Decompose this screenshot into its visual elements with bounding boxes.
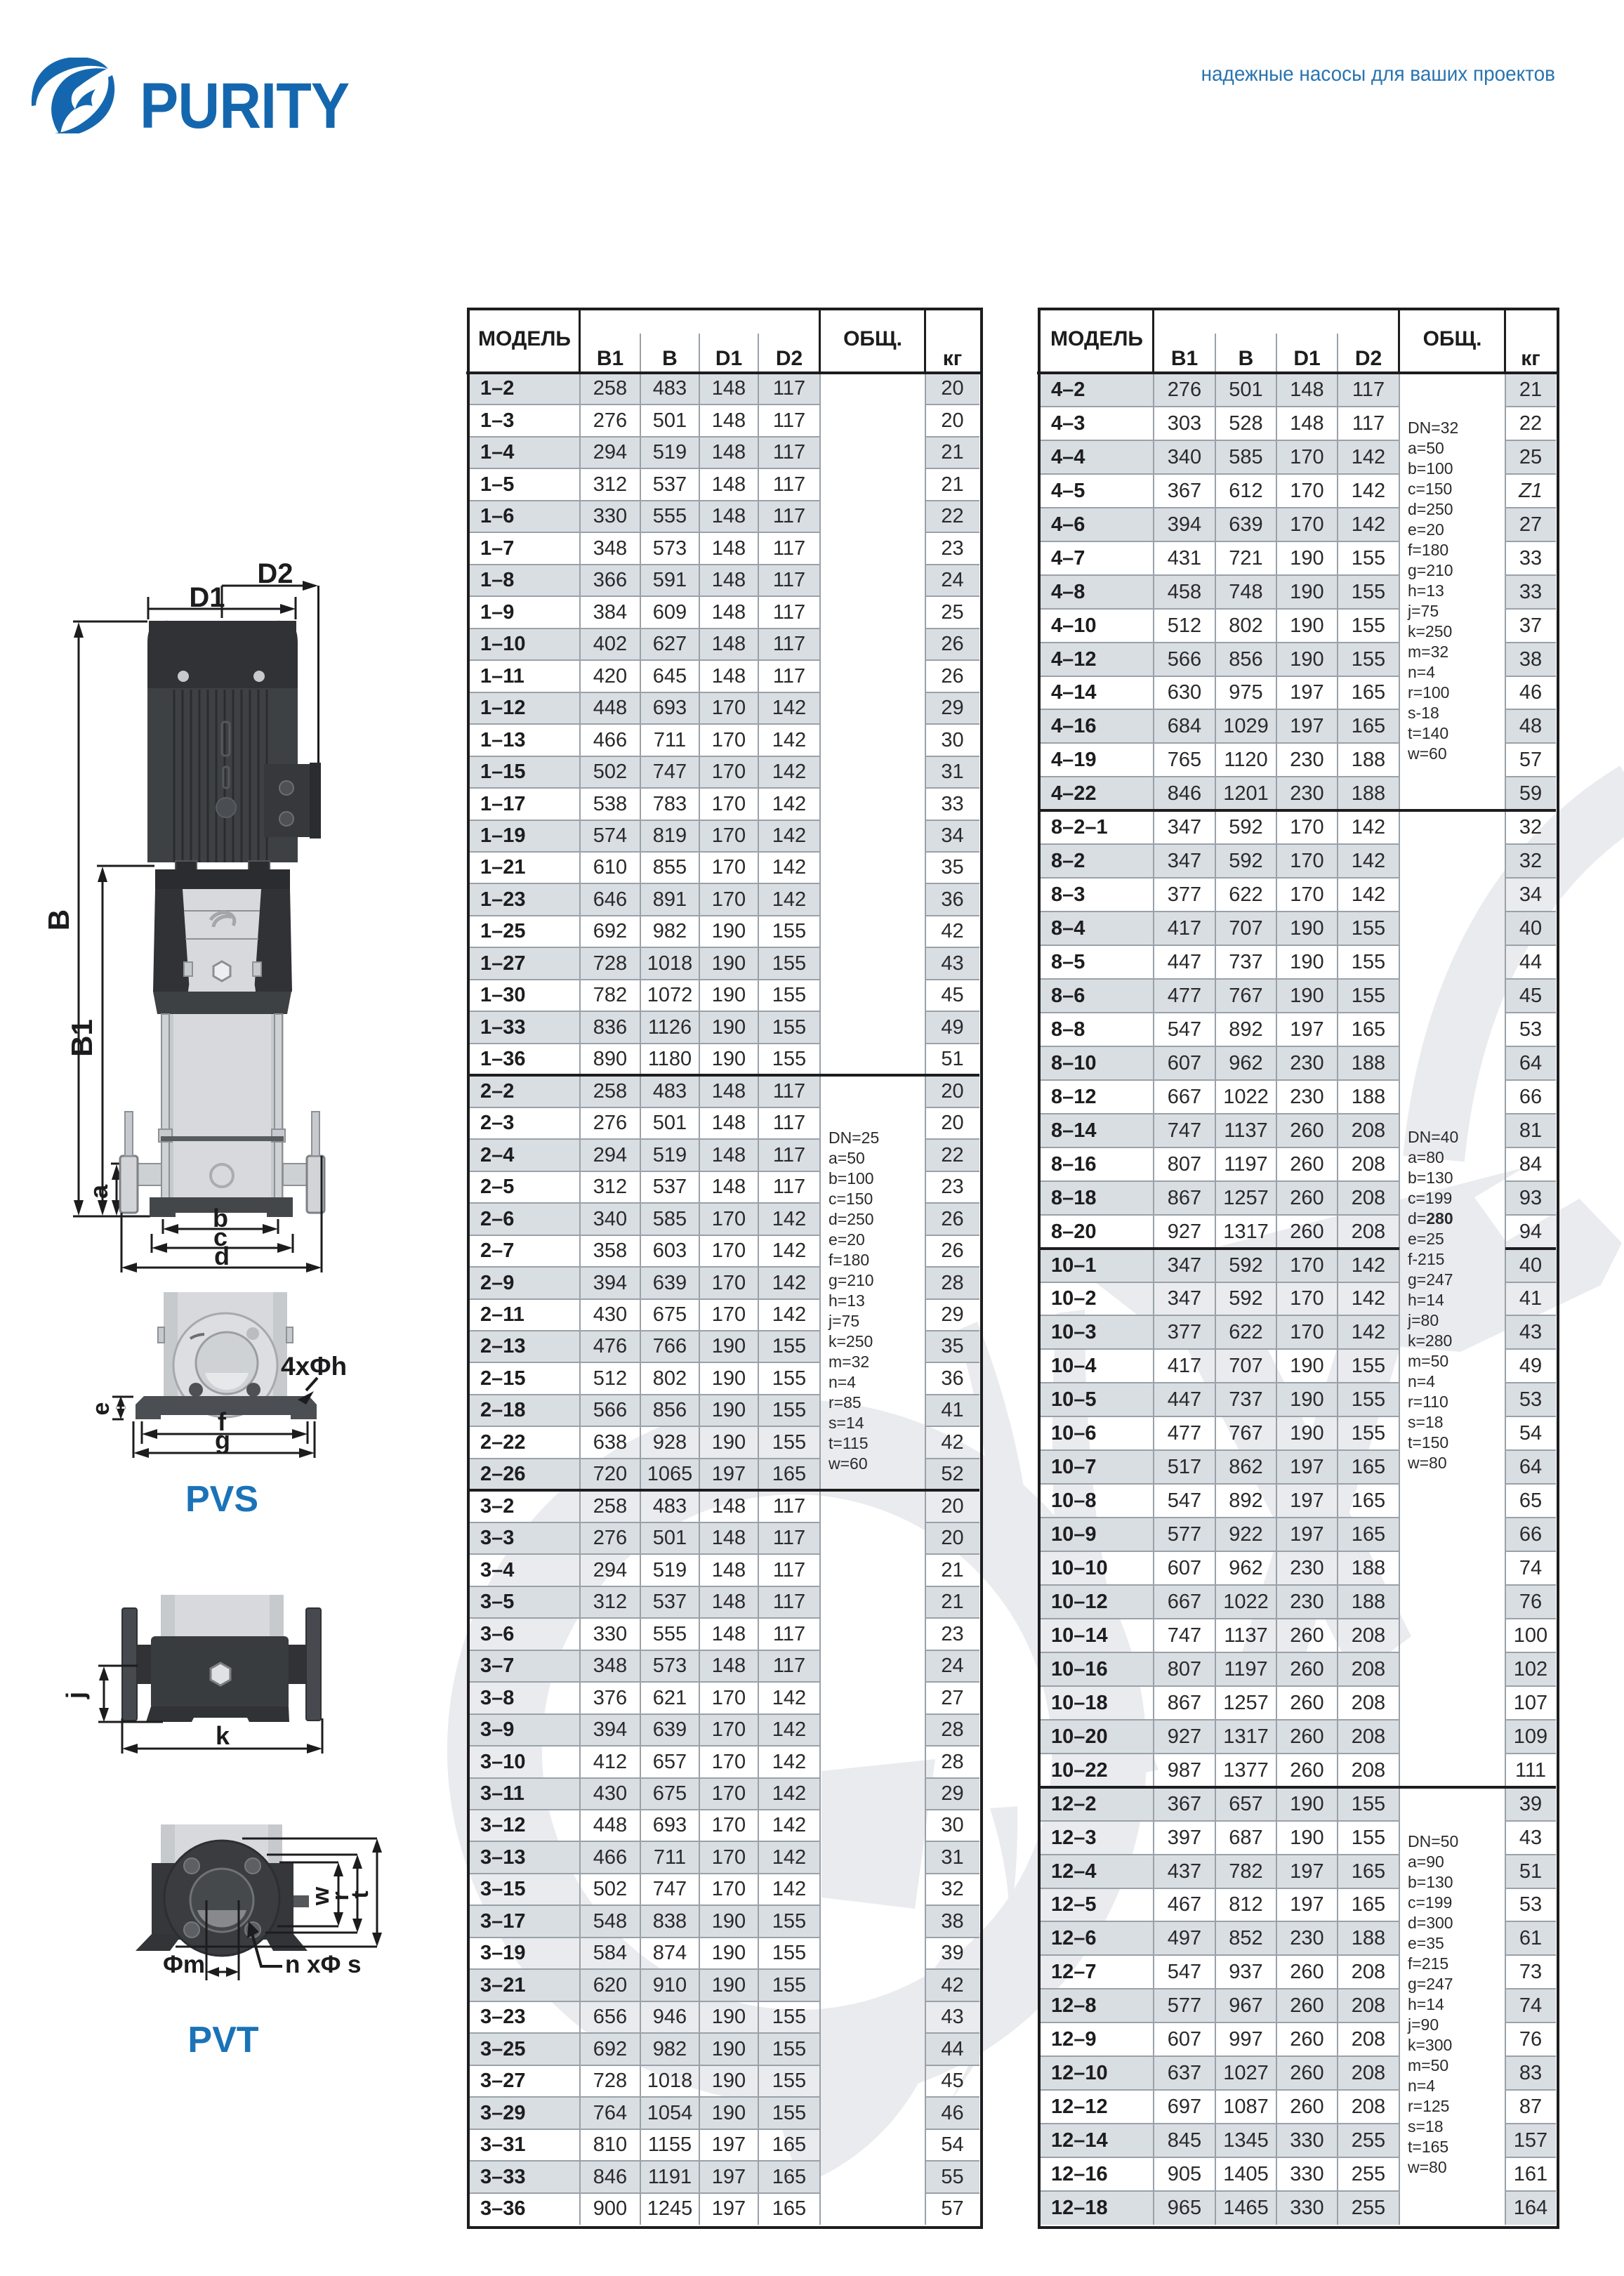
svg-text:D2: D2 — [257, 558, 293, 589]
svg-text:t: t — [347, 1890, 374, 1898]
svg-text:k: k — [216, 1721, 230, 1750]
svg-text:a: a — [84, 1184, 113, 1199]
svg-text:PVS: PVS — [185, 1479, 258, 1520]
svg-text:4xΦh: 4xΦh — [281, 1352, 347, 1381]
svg-text:B1: B1 — [65, 1019, 98, 1057]
svg-text:g: g — [215, 1426, 230, 1454]
svg-text:Φm: Φm — [163, 1951, 205, 1978]
svg-text:B: B — [42, 909, 75, 930]
svg-text:PVT: PVT — [187, 2020, 258, 2060]
svg-text:d: d — [214, 1242, 230, 1270]
svg-text:n xΦ s: n xΦ s — [285, 1951, 362, 1978]
svg-text:e: e — [88, 1402, 114, 1416]
svg-text:j: j — [61, 1692, 90, 1699]
